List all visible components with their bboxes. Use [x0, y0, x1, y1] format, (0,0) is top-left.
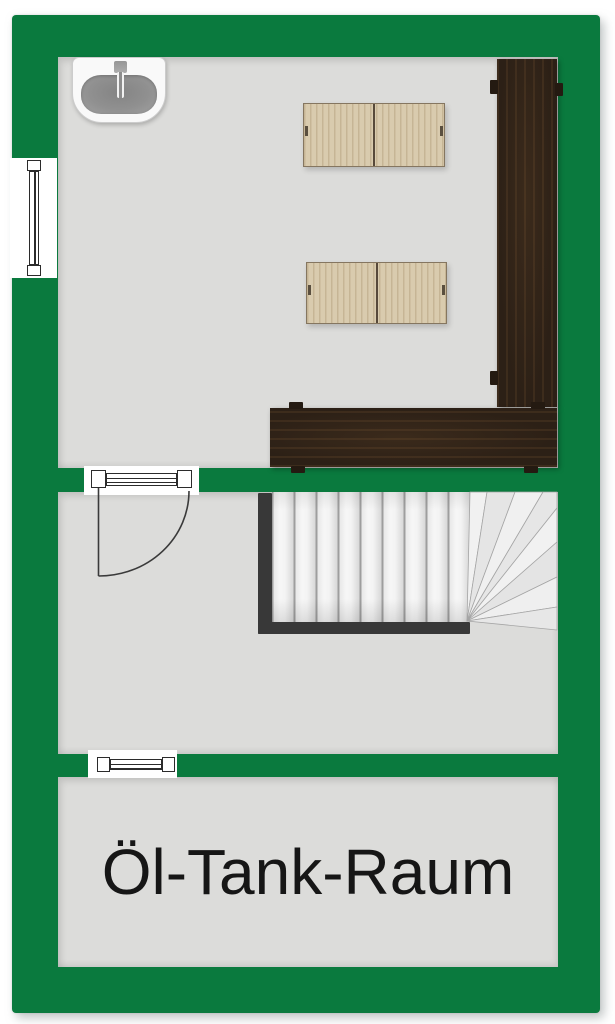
- bench-knob-icon: [291, 466, 305, 473]
- window-frame-icon: [27, 160, 41, 171]
- cabinet-divider-icon: [373, 104, 375, 166]
- window-frame-icon: [162, 757, 175, 772]
- door-panel-icon: [106, 473, 177, 486]
- door-opening: [84, 466, 199, 495]
- cabinet-handle-icon: [305, 126, 308, 136]
- door-frame-icon: [91, 470, 106, 488]
- bench-right-wall: [497, 59, 557, 407]
- window-interior-opening: [88, 750, 177, 778]
- bench-knob-icon: [524, 466, 538, 473]
- floorplan-canvas: Öl-Tank-Raum: [0, 0, 615, 1024]
- stair-stringer-left: [258, 493, 272, 634]
- bench-knob-icon: [289, 402, 303, 409]
- window-glass-icon: [110, 759, 162, 770]
- cabinet-divider-icon: [376, 263, 378, 323]
- faucet-stem-slot: [117, 72, 124, 98]
- window-glass-icon: [29, 171, 39, 265]
- bench-knob-icon: [490, 371, 498, 385]
- window-frame-icon: [97, 757, 110, 772]
- bench-knob-icon: [555, 83, 563, 96]
- cabinet-upper: [303, 103, 445, 167]
- stair-treads: [272, 492, 470, 622]
- cabinet-lower: [306, 262, 447, 324]
- cabinet-handle-icon: [442, 285, 445, 295]
- cabinet-handle-icon: [308, 285, 311, 295]
- bench-knob-icon: [531, 402, 545, 409]
- room-label-oil-tank: Öl-Tank-Raum: [58, 777, 558, 967]
- stair-stringer-bottom: [258, 622, 470, 634]
- sink-icon: [72, 57, 166, 123]
- cabinet-handle-icon: [440, 126, 443, 136]
- window-frame-icon: [27, 265, 41, 276]
- bench-bottom: [270, 408, 557, 467]
- bench-knob-icon: [490, 80, 498, 94]
- door-frame-icon: [177, 470, 192, 488]
- window-left-opening: [10, 158, 57, 278]
- faucet-stem-icon: [119, 72, 122, 98]
